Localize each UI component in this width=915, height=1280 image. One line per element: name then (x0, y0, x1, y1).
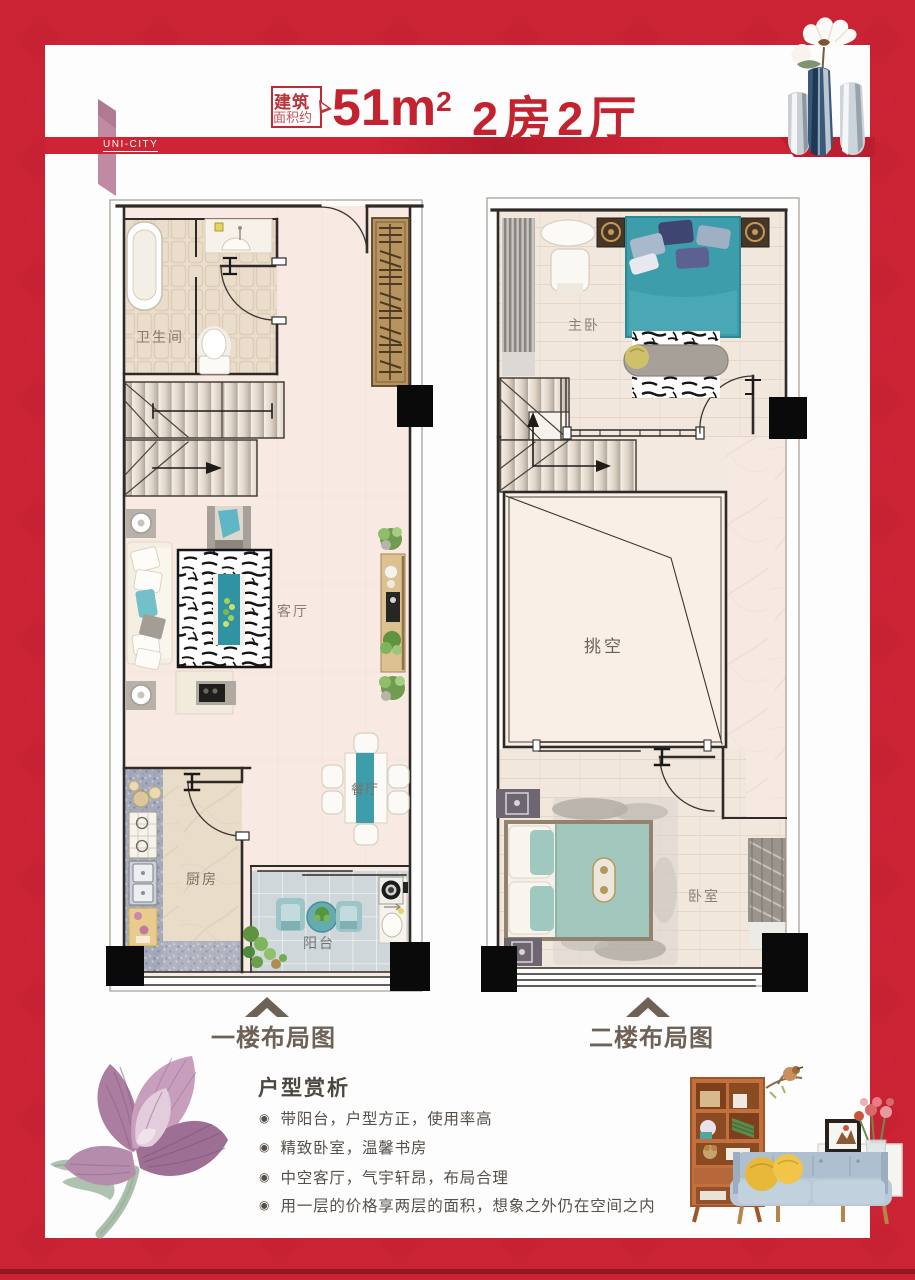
svg-text:厨房: 厨房 (186, 871, 218, 887)
svg-text:挑空: 挑空 (584, 637, 624, 656)
svg-text:客厅: 客厅 (277, 603, 309, 619)
svg-text:卧室: 卧室 (688, 888, 720, 904)
svg-text:主卧: 主卧 (568, 317, 600, 333)
svg-text:阳台: 阳台 (303, 935, 335, 951)
svg-text:餐厅: 餐厅 (351, 782, 379, 797)
svg-text:卫生间: 卫生间 (136, 329, 184, 345)
